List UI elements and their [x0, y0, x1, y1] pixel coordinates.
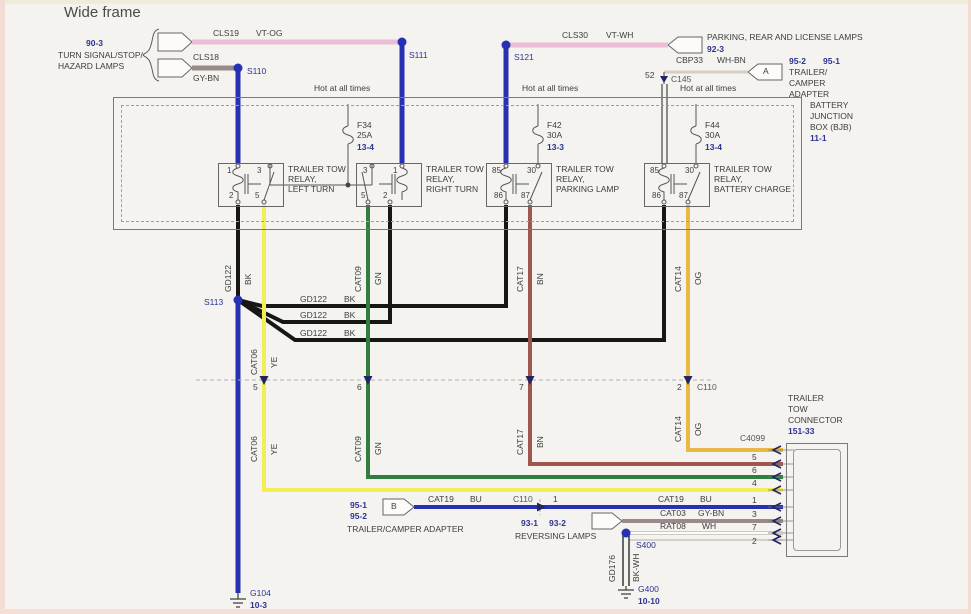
r4-name-3: BATTERY CHARGE — [714, 185, 791, 194]
label-g400: G400 — [638, 585, 659, 594]
ref-151-33: 151-33 — [788, 427, 814, 436]
label-f42: F42 — [547, 121, 562, 130]
label-parking-lamps: PARKING, REAR AND LICENSE LAMPS — [707, 33, 863, 42]
c4099-pin-bu: 1 — [752, 496, 757, 505]
c4099-arrows — [773, 446, 781, 544]
label-hot-2: Hot at all times — [522, 84, 578, 93]
connector-b — [383, 499, 414, 515]
c110-pin-og: 2 — [677, 383, 682, 392]
label-cat14-v2: CAT14 — [674, 416, 683, 442]
ground-g104 — [230, 593, 246, 607]
r4-pin-tl: 85 — [650, 167, 659, 176]
r3-pin-bl: 86 — [494, 192, 503, 201]
r3-pin-tr: 30 — [527, 167, 536, 176]
label-cls18: CLS18 — [193, 53, 219, 62]
ref-95-2-bot: 95-2 — [350, 512, 367, 521]
r3-pin-br: 87 — [521, 192, 530, 201]
r4-pin-bl: 86 — [652, 192, 661, 201]
label-rat08: RAT08 — [660, 522, 686, 531]
splice-s111 — [398, 38, 407, 47]
c4099-pin-wh: 7 — [752, 523, 757, 532]
label-g104: G104 — [250, 589, 271, 598]
r2-pin-tr: 1 — [393, 167, 397, 176]
r4-name-1: TRAILER TOW — [714, 165, 772, 174]
r1-name-2: RELAY, — [288, 175, 317, 184]
label-f34-amps: 25A — [357, 131, 372, 140]
label-bn-v: BN — [536, 273, 545, 285]
label-wh-bot: WH — [702, 522, 716, 531]
label-bu-2: BU — [700, 495, 712, 504]
label-c110-bot: C110 — [513, 495, 533, 504]
ref-90-3: 90-3 — [86, 39, 103, 48]
r3-name-1: TRAILER TOW — [556, 165, 614, 174]
c145-arrow — [660, 76, 668, 83]
r1-pin-tr: 3 — [257, 167, 261, 176]
row2-bk: BK — [344, 311, 355, 320]
label-cat19-2: CAT19 — [658, 495, 684, 504]
label-pin52: 52 — [645, 71, 654, 80]
r1-pin-br: 5 — [255, 192, 259, 201]
label-cat19-1: CAT19 — [428, 495, 454, 504]
label-bkwh: BK-WH — [632, 554, 641, 582]
connector-turn-2 — [158, 59, 192, 77]
ref-95-1-bot: 95-1 — [350, 501, 367, 510]
ground-g400 — [618, 586, 634, 598]
splice-s110 — [234, 64, 243, 73]
row3-gd122: GD122 — [300, 329, 327, 338]
ref-11-1: 11-1 — [810, 134, 827, 143]
label-bjb-1: BATTERY — [810, 101, 848, 110]
splice-s113 — [234, 296, 243, 305]
conn-name-2: TOW — [788, 405, 808, 414]
label-cbp33: CBP33 — [676, 56, 703, 65]
r3-name-3: PARKING LAMP — [556, 185, 619, 194]
label-gd176: GD176 — [608, 555, 617, 582]
label-f44-amps: 30A — [705, 131, 720, 140]
conn-name-3: CONNECTOR — [788, 416, 843, 425]
label-conn-a: A — [763, 67, 769, 76]
label-c110-mid: C110 — [697, 383, 717, 392]
c4099-pin-bn: 5 — [752, 453, 757, 462]
ref-10-10: 10-10 — [638, 597, 660, 606]
row2-gd122: GD122 — [300, 311, 327, 320]
connector-turn-1 — [158, 33, 192, 51]
conn-name-1: TRAILER — [788, 394, 824, 403]
label-conn-b: B — [391, 502, 397, 511]
label-f34: F34 — [357, 121, 372, 130]
row1-gd122: GD122 — [300, 295, 327, 304]
wire-cat14-og — [688, 205, 783, 450]
label-og-v: OG — [694, 272, 703, 285]
c4099-pin-last: 2 — [752, 537, 757, 546]
label-hazard-lamps: HAZARD LAMPS — [58, 62, 124, 71]
label-f44: F44 — [705, 121, 720, 130]
label-cat03: CAT03 — [660, 509, 686, 518]
label-cat06-v2: CAT06 — [250, 436, 259, 462]
label-s110: S110 — [247, 67, 266, 76]
wiring-diagram: Wide frame — [0, 0, 971, 614]
r4-pin-br: 87 — [679, 192, 688, 201]
r1-pin-tl: 1 — [227, 167, 231, 176]
label-cat14-v: CAT14 — [674, 266, 683, 292]
label-bn-v2: BN — [536, 436, 545, 448]
ref-93-2: 93-2 — [549, 519, 566, 528]
label-turn-signal: TURN SIGNAL/STOP/ — [58, 51, 143, 60]
r4-name-2: RELAY, — [714, 175, 743, 184]
r2-pin-bl: 5 — [361, 192, 365, 201]
label-hot-1: Hot at all times — [314, 84, 370, 93]
row1-bk: BK — [344, 295, 355, 304]
ref-f44: 13-4 — [705, 143, 722, 152]
label-cat09-v: CAT09 — [354, 266, 363, 292]
label-bjb-2: JUNCTION — [810, 112, 853, 121]
row3-bk: BK — [344, 329, 355, 338]
r1-name-1: TRAILER TOW — [288, 165, 346, 174]
label-bjb-3: BOX (BJB) — [810, 123, 852, 132]
ref-92-3: 92-3 — [707, 45, 724, 54]
label-cat06-v: CAT06 — [250, 349, 259, 375]
label-bu-1: BU — [470, 495, 482, 504]
c110-arrow-og — [684, 376, 693, 385]
label-cls19-color: VT-OG — [256, 29, 282, 38]
r1-pin-bl: 2 — [229, 192, 233, 201]
label-ye-v: YE — [270, 357, 279, 368]
label-bk-v: BK — [244, 274, 253, 285]
c4099-pin-ye: 4 — [752, 479, 757, 488]
ref-95-1-top: 95-1 — [823, 57, 840, 66]
r2-pin-br: 2 — [383, 192, 387, 201]
c4099-pin-gy: 3 — [752, 510, 757, 519]
label-cat17-v: CAT17 — [516, 266, 525, 292]
r4-pin-tr: 30 — [685, 167, 694, 176]
r2-name-3: RIGHT TURN — [426, 185, 478, 194]
label-adapter: ADAPTER — [789, 90, 829, 99]
label-trailer: TRAILER/ — [789, 68, 827, 77]
label-gn-v: GN — [374, 272, 383, 285]
label-cls30: CLS30 — [562, 31, 588, 40]
connector-reversing — [592, 513, 622, 529]
label-s400: S400 — [636, 541, 656, 550]
label-og-v2: OG — [694, 423, 703, 436]
c4099-pin-gn: 6 — [752, 466, 757, 475]
r2-name-2: RELAY, — [426, 175, 455, 184]
label-reversing: REVERSING LAMPS — [515, 532, 596, 541]
label-cls30-color: VT-WH — [606, 31, 633, 40]
label-adapter-bot: TRAILER/CAMPER ADAPTER — [347, 525, 464, 534]
label-s113: S113 — [204, 298, 223, 307]
ref-10-3: 10-3 — [250, 601, 267, 610]
splice-s400 — [622, 529, 631, 538]
label-cbp33-color: WH-BN — [717, 56, 746, 65]
label-camper: CAMPER — [789, 79, 825, 88]
r2-name-1: TRAILER TOW — [426, 165, 484, 174]
wire-cat17-bn — [530, 205, 783, 464]
r3-name-2: RELAY, — [556, 175, 585, 184]
label-cls19: CLS19 — [213, 29, 239, 38]
r2-pin-tl: 3 — [363, 167, 367, 176]
label-gd122-v: GD122 — [224, 265, 233, 292]
brace-left — [143, 29, 159, 81]
label-cat09-v2: CAT09 — [354, 436, 363, 462]
label-s111: S111 — [409, 51, 428, 60]
label-ye-v2: YE — [270, 444, 279, 455]
c110-pin-gn: 6 — [357, 383, 362, 392]
ref-f42: 13-3 — [547, 143, 564, 152]
label-gn-v2: GN — [374, 442, 383, 455]
c4099-inner-box — [793, 449, 841, 551]
c110-pin-ye: 5 — [253, 383, 258, 392]
c110-pin-bn: 7 — [519, 383, 524, 392]
label-gybn-bot: GY-BN — [698, 509, 724, 518]
ref-f34: 13-4 — [357, 143, 374, 152]
ref-93-1: 93-1 — [521, 519, 538, 528]
label-cls18-color: GY-BN — [193, 74, 219, 83]
label-pin1-bot: 1 — [553, 495, 558, 504]
label-hot-3: Hot at all times — [680, 84, 736, 93]
r3-pin-tl: 85 — [492, 167, 501, 176]
label-cat17-v2: CAT17 — [516, 429, 525, 455]
r1-name-3: LEFT TURN — [288, 185, 334, 194]
label-c4099: C4099 — [740, 434, 765, 443]
splice-s121 — [502, 41, 511, 50]
connector-parking — [668, 37, 702, 53]
c110-arrow-bu — [537, 503, 546, 512]
label-f42-amps: 30A — [547, 131, 562, 140]
ref-95-2-top: 95-2 — [789, 57, 806, 66]
label-s121: S121 — [514, 53, 534, 62]
